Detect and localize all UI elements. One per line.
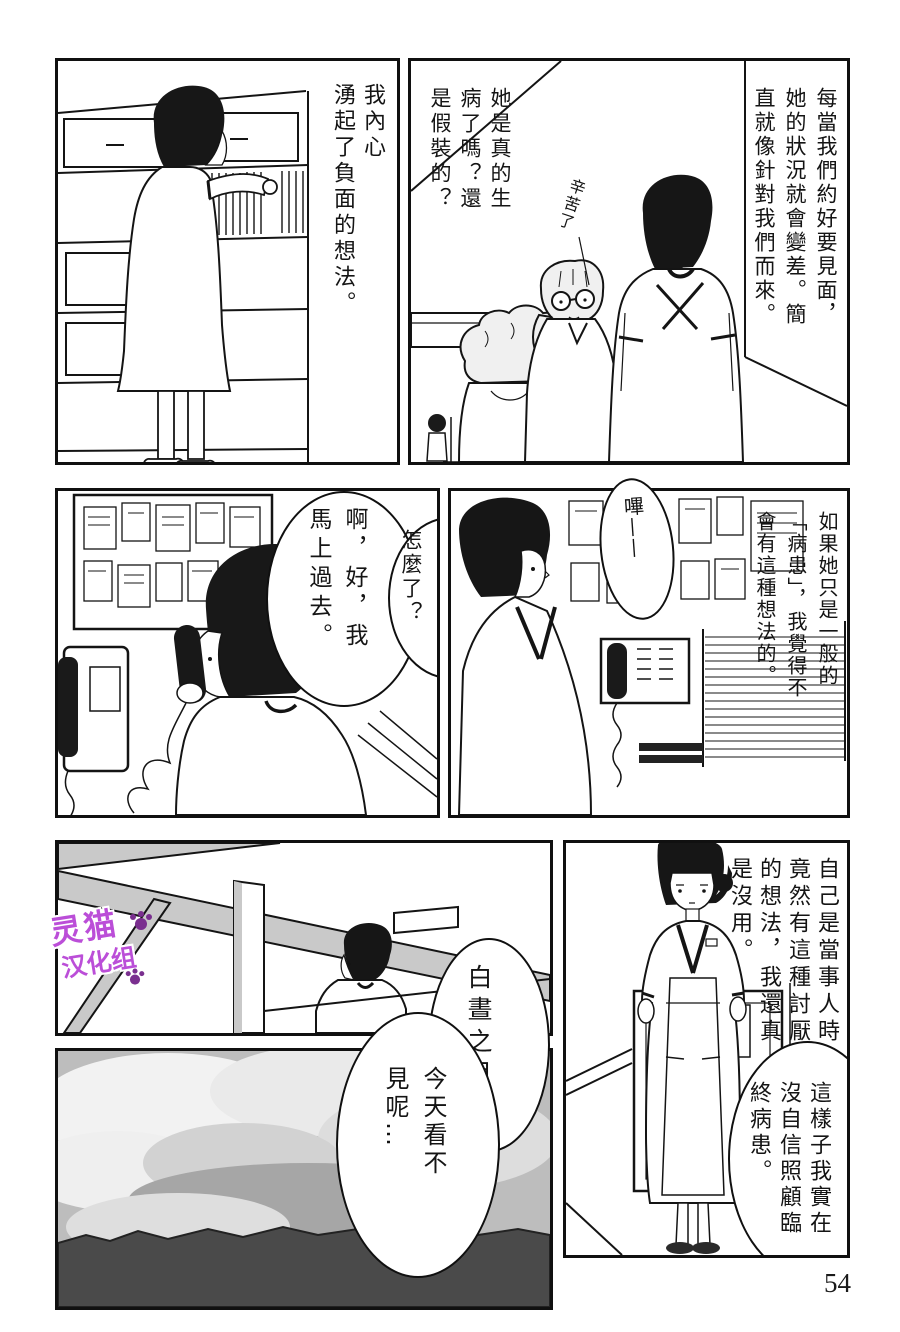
nurse-back-figure	[609, 175, 743, 462]
thought-text-top-left: 我內心 湧起了負面的想法。	[327, 83, 387, 317]
manga-page: 我內心 湧起了負面的想法。	[0, 0, 900, 1332]
panel-top-right: 每當我們約好要見面， 她的狀況就會變差。簡 直就像針對我們而來。 她是真的生 病…	[408, 58, 850, 465]
wall-sign	[394, 907, 458, 933]
narration-bottom-right: 自己是當事人時 竟然有這種討厭 的想法，我還真 是沒用。	[725, 857, 841, 1046]
panel-bottom-right: 自己是當事人時 竟然有這種討厭 的想法，我還真 是沒用。 這樣子我實在 沒自信照…	[563, 840, 850, 1258]
thought-text-top-right: 她是真的生 病了嗎？還 是假裝的？	[425, 87, 515, 212]
panel-mid-left: 啊，好，我 馬上過去。 怎麼了？	[55, 488, 440, 818]
reply-text: 啊，好，我 馬上過去。	[300, 507, 372, 652]
today-bubble-text: 今天看不 見呢…	[376, 1066, 452, 1178]
panel-top-left: 我內心 湧起了負面的想法。	[55, 58, 400, 465]
nurse-at-cabinet-figure	[118, 86, 277, 462]
phone-voice-text: 怎麼了？	[398, 529, 424, 625]
narration-top-right: 每當我們約好要見面， 她的狀況就會變差。簡 直就像針對我們而來。	[748, 87, 841, 327]
paw-print-icon	[124, 966, 146, 988]
tree-line	[58, 1227, 550, 1307]
wall-phone	[58, 647, 128, 815]
beep-sfx-text: 嗶——	[616, 495, 651, 560]
glasses-woman-figure	[525, 260, 619, 462]
speech-text-bottom-right: 這樣子我實在 沒自信照顧臨 終病患。	[743, 1081, 833, 1237]
small-figure	[427, 414, 459, 462]
background-lines	[358, 711, 437, 797]
intercom-phone	[601, 639, 689, 787]
page-number: 54	[824, 1268, 851, 1299]
paw-print-icon	[128, 908, 154, 934]
narration-mid-right: 如果她只是一般的 「病患」，我覺得不 會有這種想法的。	[749, 511, 842, 699]
